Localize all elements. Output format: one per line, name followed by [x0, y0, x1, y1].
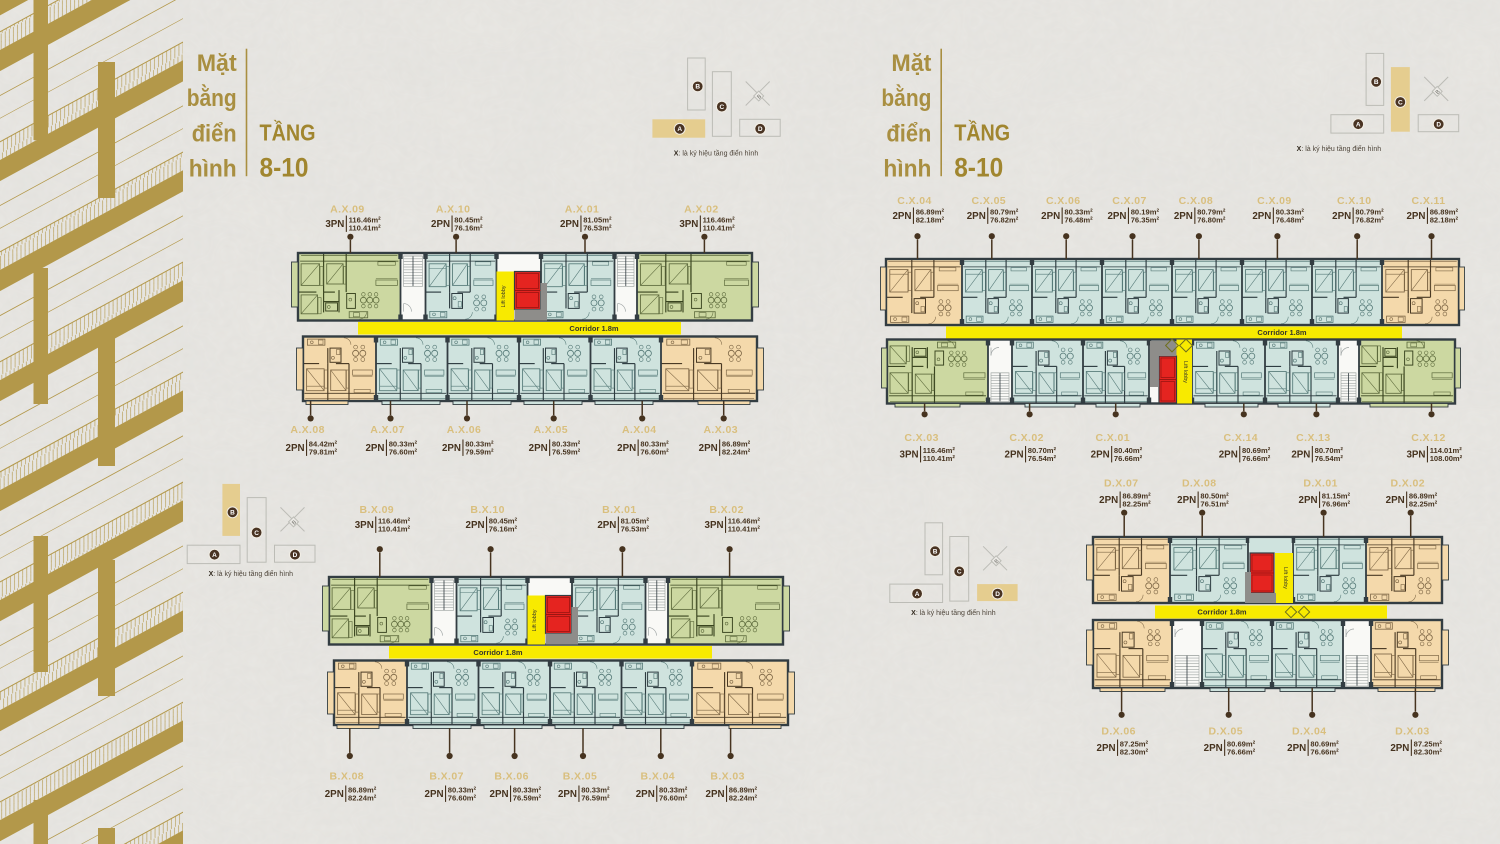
svg-text:2PN: 2PN — [597, 520, 616, 531]
svg-text:X: là ký hiệu tầng điển hình: X: là ký hiệu tầng điển hình — [674, 149, 759, 158]
svg-text:C.X.06: C.X.06 — [1046, 195, 1081, 207]
svg-text:110.41m²: 110.41m² — [703, 224, 736, 233]
svg-text:C.X.10: C.X.10 — [1337, 195, 1372, 207]
svg-text:2PN: 2PN — [1204, 743, 1223, 754]
svg-text:76.59m²: 76.59m² — [552, 448, 581, 457]
svg-text:A.X.05: A.X.05 — [533, 424, 568, 436]
svg-text:D.X.04: D.X.04 — [1292, 726, 1327, 738]
svg-text:B.X.04: B.X.04 — [641, 771, 676, 783]
svg-text:Lift lobby: Lift lobby — [1282, 567, 1288, 589]
svg-text:76.60m²: 76.60m² — [448, 794, 477, 803]
svg-text:Lift lobby: Lift lobby — [501, 285, 507, 307]
svg-text:8-10: 8-10 — [954, 153, 1003, 183]
svg-text:2PN: 2PN — [529, 443, 548, 454]
svg-text:2PN: 2PN — [1041, 211, 1060, 222]
svg-text:B.X.05: B.X.05 — [563, 771, 598, 783]
svg-text:3PN: 3PN — [679, 219, 698, 230]
svg-text:79.59m²: 79.59m² — [465, 448, 494, 457]
svg-text:82.30m²: 82.30m² — [1120, 748, 1149, 757]
svg-text:A.X.06: A.X.06 — [447, 424, 482, 436]
svg-text:110.41m²: 110.41m² — [728, 525, 761, 534]
svg-text:Lift lobby: Lift lobby — [532, 609, 538, 631]
svg-text:Corridor 1.8m: Corridor 1.8m — [473, 648, 523, 657]
svg-text:76.59m²: 76.59m² — [581, 794, 610, 803]
svg-text:2PN: 2PN — [558, 789, 577, 800]
svg-text:76.82m²: 76.82m² — [1355, 216, 1384, 225]
svg-text:C.X.02: C.X.02 — [1009, 432, 1044, 444]
svg-text:D.X.06: D.X.06 — [1101, 726, 1136, 738]
svg-text:C.X.13: C.X.13 — [1296, 432, 1331, 444]
svg-text:A.X.02: A.X.02 — [684, 204, 719, 216]
svg-text:X: là ký hiệu tầng điển hình: X: là ký hiệu tầng điển hình — [911, 608, 996, 617]
svg-text:2PN: 2PN — [560, 219, 579, 230]
svg-text:Lift lobby: Lift lobby — [1182, 361, 1188, 383]
svg-text:D: D — [758, 126, 763, 133]
svg-text:2PN: 2PN — [365, 443, 384, 454]
svg-text:2PN: 2PN — [442, 443, 461, 454]
svg-text:3PN: 3PN — [355, 520, 374, 531]
svg-text:2PN: 2PN — [1174, 211, 1193, 222]
svg-text:2PN: 2PN — [1299, 495, 1318, 506]
svg-text:3PN: 3PN — [1406, 449, 1425, 460]
svg-text:108.00m²: 108.00m² — [1430, 454, 1463, 463]
svg-text:TẦNG: TẦNG — [954, 119, 1010, 146]
svg-text:2PN: 2PN — [967, 211, 986, 222]
svg-text:C.X.14: C.X.14 — [1224, 432, 1259, 444]
svg-text:76.54m²: 76.54m² — [1028, 454, 1057, 463]
svg-text:Mặt: Mặt — [891, 50, 931, 77]
svg-text:76.53m²: 76.53m² — [621, 525, 650, 534]
svg-text:điển: điển — [886, 120, 931, 147]
svg-text:A.X.01: A.X.01 — [565, 204, 600, 216]
svg-text:76.66m²: 76.66m² — [1227, 748, 1256, 757]
svg-text:76.48m²: 76.48m² — [1064, 216, 1093, 225]
svg-text:B.X.06: B.X.06 — [494, 771, 529, 783]
svg-text:76.48m²: 76.48m² — [1276, 216, 1305, 225]
svg-text:2PN: 2PN — [325, 789, 344, 800]
svg-text:C.X.11: C.X.11 — [1412, 195, 1446, 207]
svg-text:A.X.09: A.X.09 — [330, 204, 365, 216]
svg-text:76.16m²: 76.16m² — [489, 525, 518, 534]
svg-text:C.X.09: C.X.09 — [1257, 195, 1292, 207]
svg-text:bằng: bằng — [187, 84, 237, 112]
svg-text:Corridor 1.8m: Corridor 1.8m — [1197, 608, 1247, 617]
svg-text:C: C — [254, 530, 259, 537]
svg-text:110.41m²: 110.41m² — [378, 525, 411, 534]
svg-text:2PN: 2PN — [892, 211, 911, 222]
svg-text:2PN: 2PN — [1177, 495, 1196, 506]
svg-text:A: A — [677, 126, 682, 133]
svg-text:B.X.10: B.X.10 — [470, 504, 505, 516]
svg-text:C.X.12: C.X.12 — [1411, 432, 1446, 444]
svg-text:76.66m²: 76.66m² — [1114, 454, 1143, 463]
svg-text:2PN: 2PN — [1406, 211, 1425, 222]
svg-text:82.30m²: 82.30m² — [1414, 748, 1443, 757]
svg-text:C.X.04: C.X.04 — [897, 195, 932, 207]
svg-text:2PN: 2PN — [1287, 743, 1306, 754]
svg-text:76.54m²: 76.54m² — [1315, 454, 1344, 463]
svg-text:2PN: 2PN — [706, 789, 725, 800]
svg-text:79.81m²: 79.81m² — [309, 448, 338, 457]
svg-text:B: B — [230, 510, 235, 517]
svg-text:C: C — [957, 569, 962, 576]
svg-text:D.X.01: D.X.01 — [1303, 478, 1338, 490]
svg-text:A: A — [212, 552, 217, 559]
svg-text:8-10: 8-10 — [260, 153, 309, 183]
svg-text:B: B — [1374, 79, 1379, 86]
svg-text:D.X.05: D.X.05 — [1208, 726, 1243, 738]
svg-text:2PN: 2PN — [1291, 449, 1310, 460]
svg-text:A.X.07: A.X.07 — [370, 424, 405, 436]
svg-text:A.X.10: A.X.10 — [436, 204, 471, 216]
svg-text:76.96m²: 76.96m² — [1322, 500, 1351, 509]
svg-text:B.X.03: B.X.03 — [710, 771, 745, 783]
svg-text:TẦNG: TẦNG — [260, 119, 316, 146]
svg-text:C.X.08: C.X.08 — [1179, 195, 1214, 207]
svg-text:C: C — [1398, 99, 1403, 106]
svg-text:bằng: bằng — [881, 84, 931, 112]
svg-text:2PN: 2PN — [1005, 449, 1024, 460]
svg-text:A.X.08: A.X.08 — [290, 424, 325, 436]
svg-text:A.X.03: A.X.03 — [703, 424, 738, 436]
svg-text:B: B — [933, 549, 938, 556]
svg-text:2PN: 2PN — [636, 789, 655, 800]
svg-text:76.60m²: 76.60m² — [659, 794, 688, 803]
svg-text:76.59m²: 76.59m² — [513, 794, 542, 803]
svg-text:C.X.03: C.X.03 — [904, 432, 939, 444]
svg-text:3PN: 3PN — [900, 449, 919, 460]
svg-text:2PN: 2PN — [490, 789, 509, 800]
svg-text:A: A — [1356, 122, 1361, 129]
svg-text:hình: hình — [883, 156, 931, 183]
svg-text:82.24m²: 82.24m² — [722, 448, 751, 457]
svg-text:76.60m²: 76.60m² — [640, 448, 669, 457]
svg-text:D: D — [1436, 122, 1441, 129]
svg-text:76.16m²: 76.16m² — [454, 224, 483, 233]
svg-text:D.X.03: D.X.03 — [1395, 726, 1430, 738]
svg-text:3PN: 3PN — [325, 219, 344, 230]
svg-text:82.18m²: 82.18m² — [1430, 216, 1459, 225]
svg-text:C.X.01: C.X.01 — [1095, 432, 1130, 444]
svg-text:C.X.07: C.X.07 — [1112, 195, 1147, 207]
svg-text:2PN: 2PN — [617, 443, 636, 454]
svg-text:2PN: 2PN — [466, 520, 485, 531]
svg-text:2PN: 2PN — [1386, 495, 1405, 506]
svg-text:2PN: 2PN — [1097, 743, 1116, 754]
svg-text:110.41m²: 110.41m² — [923, 454, 956, 463]
svg-text:76.82m²: 76.82m² — [990, 216, 1019, 225]
svg-text:B.X.01: B.X.01 — [602, 504, 637, 516]
svg-text:2PN: 2PN — [699, 443, 718, 454]
svg-text:B: B — [695, 84, 700, 91]
svg-text:2PN: 2PN — [1091, 449, 1110, 460]
svg-text:Corridor 1.8m: Corridor 1.8m — [1257, 328, 1307, 337]
svg-text:110.41m²: 110.41m² — [349, 224, 382, 233]
svg-text:2PN: 2PN — [1390, 743, 1409, 754]
svg-text:76.66m²: 76.66m² — [1310, 748, 1339, 757]
svg-text:82.25m²: 82.25m² — [1409, 500, 1438, 509]
svg-text:D.X.02: D.X.02 — [1390, 478, 1425, 490]
svg-text:Corridor 1.8m: Corridor 1.8m — [569, 324, 619, 333]
svg-text:2PN: 2PN — [425, 789, 444, 800]
svg-text:A.X.04: A.X.04 — [622, 424, 657, 436]
svg-text:B.X.09: B.X.09 — [360, 504, 395, 516]
svg-text:hình: hình — [189, 156, 237, 183]
svg-text:76.80m²: 76.80m² — [1197, 216, 1226, 225]
svg-text:X: là ký hiệu tầng điển hình: X: là ký hiệu tầng điển hình — [1297, 144, 1382, 153]
svg-text:82.25m²: 82.25m² — [1122, 500, 1151, 509]
svg-text:82.24m²: 82.24m² — [348, 794, 377, 803]
svg-text:X: là ký hiệu tầng điển hình: X: là ký hiệu tầng điển hình — [209, 569, 294, 578]
svg-text:76.35m²: 76.35m² — [1131, 216, 1160, 225]
svg-text:C: C — [719, 104, 724, 111]
svg-text:D: D — [293, 552, 298, 559]
svg-text:2PN: 2PN — [1219, 449, 1238, 460]
svg-text:76.51m²: 76.51m² — [1200, 500, 1229, 509]
svg-text:82.18m²: 82.18m² — [916, 216, 945, 225]
svg-text:D.X.07: D.X.07 — [1104, 478, 1139, 490]
svg-text:2PN: 2PN — [1332, 211, 1351, 222]
svg-text:76.60m²: 76.60m² — [389, 448, 418, 457]
svg-text:3PN: 3PN — [705, 520, 724, 531]
svg-text:điển: điển — [192, 120, 237, 147]
svg-text:C.X.05: C.X.05 — [972, 195, 1007, 207]
svg-text:B.X.07: B.X.07 — [429, 771, 464, 783]
svg-text:2PN: 2PN — [1107, 211, 1126, 222]
svg-text:76.66m²: 76.66m² — [1242, 454, 1271, 463]
svg-text:82.24m²: 82.24m² — [729, 794, 758, 803]
svg-text:Mặt: Mặt — [197, 50, 237, 77]
svg-text:B.X.08: B.X.08 — [330, 771, 365, 783]
svg-text:D.X.08: D.X.08 — [1182, 478, 1217, 490]
svg-text:2PN: 2PN — [431, 219, 450, 230]
svg-text:2PN: 2PN — [1252, 211, 1271, 222]
svg-text:A: A — [915, 591, 920, 598]
svg-text:D: D — [995, 591, 1000, 598]
svg-text:B.X.02: B.X.02 — [709, 504, 744, 516]
svg-text:76.53m²: 76.53m² — [583, 224, 612, 233]
svg-text:2PN: 2PN — [286, 443, 305, 454]
svg-text:2PN: 2PN — [1099, 495, 1118, 506]
